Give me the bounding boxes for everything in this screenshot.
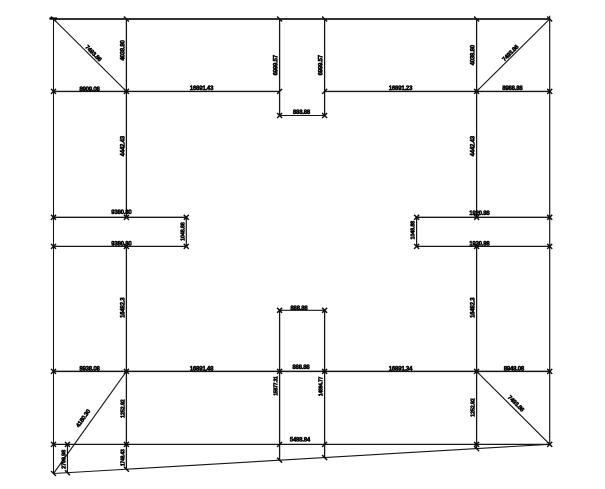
svg-text:16482.3: 16482.3 <box>471 297 477 318</box>
svg-text:1048.88: 1048.88 <box>180 222 186 241</box>
svg-text:888.88: 888.88 <box>293 110 311 116</box>
svg-text:1920.88: 1920.88 <box>469 211 490 217</box>
svg-text:9380.80: 9380.80 <box>111 210 132 216</box>
svg-text:16891.48: 16891.48 <box>190 366 214 372</box>
svg-text:4442.43: 4442.43 <box>471 135 477 156</box>
svg-text:1920.88: 1920.88 <box>469 242 490 248</box>
svg-text:1252.92: 1252.92 <box>471 398 477 417</box>
svg-text:16891.43: 16891.43 <box>190 86 214 92</box>
svg-text:4442.43: 4442.43 <box>121 135 127 156</box>
svg-text:2799.98: 2799.98 <box>62 450 68 469</box>
svg-text:888.88: 888.88 <box>292 365 310 371</box>
svg-text:15877.31: 15877.31 <box>274 376 280 396</box>
svg-text:888.88: 888.88 <box>290 306 308 312</box>
svg-text:8938.08: 8938.08 <box>79 367 100 373</box>
svg-text:16891.34: 16891.34 <box>389 366 413 372</box>
svg-text:1048.88: 1048.88 <box>411 221 417 240</box>
svg-text:14884.77: 14884.77 <box>319 376 325 396</box>
svg-text:6999.57: 6999.57 <box>319 54 325 75</box>
svg-text:6999.57: 6999.57 <box>274 54 280 75</box>
svg-text:1748.43: 1748.43 <box>121 449 127 466</box>
svg-text:1252.92: 1252.92 <box>121 399 127 418</box>
svg-text:16891.23: 16891.23 <box>389 86 413 92</box>
svg-text:16482.3: 16482.3 <box>121 297 127 318</box>
svg-text:4038.80: 4038.80 <box>121 39 127 60</box>
svg-text:5488.84: 5488.84 <box>290 437 311 443</box>
svg-text:8988.88: 8988.88 <box>502 86 523 92</box>
svg-text:8909.08: 8909.08 <box>79 87 100 93</box>
svg-text:8948.08: 8948.08 <box>504 367 525 373</box>
svg-text:9380.80: 9380.80 <box>111 242 132 248</box>
svg-text:4038.80: 4038.80 <box>471 44 477 65</box>
